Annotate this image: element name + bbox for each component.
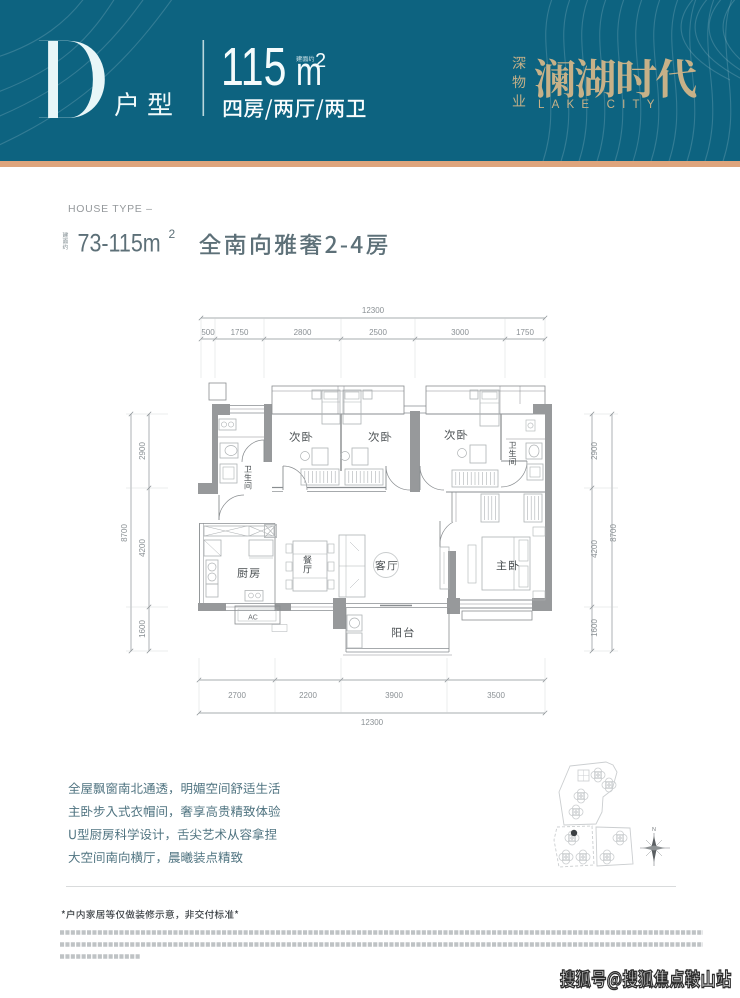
- svg-text:8700: 8700: [609, 524, 618, 542]
- svg-text:3900: 3900: [385, 691, 403, 700]
- svg-text:N: N: [652, 827, 656, 833]
- svg-text:1750: 1750: [231, 328, 249, 337]
- svg-text:AC: AC: [248, 615, 258, 622]
- svg-text:2900: 2900: [138, 442, 147, 460]
- svg-text:4200: 4200: [590, 540, 599, 558]
- svg-text:2500: 2500: [369, 328, 387, 337]
- svg-text:4200: 4200: [138, 539, 147, 557]
- svg-text:73-115m: 73-115m: [78, 229, 161, 257]
- svg-text:2800: 2800: [294, 328, 312, 337]
- svg-text:1600: 1600: [590, 619, 599, 637]
- svg-text:500: 500: [201, 328, 215, 337]
- svg-text:2: 2: [315, 50, 326, 72]
- svg-text:1750: 1750: [516, 328, 534, 337]
- svg-text:2700: 2700: [228, 691, 246, 700]
- svg-text:12300: 12300: [361, 718, 384, 727]
- svg-text:3000: 3000: [451, 328, 469, 337]
- svg-text:1600: 1600: [138, 620, 147, 638]
- svg-text:8700: 8700: [120, 524, 129, 542]
- svg-text:3500: 3500: [487, 691, 505, 700]
- svg-text:115: 115: [221, 38, 286, 98]
- svg-text:LAKE CITY: LAKE CITY: [538, 99, 662, 111]
- svg-text:2: 2: [169, 227, 176, 241]
- svg-text:12300: 12300: [362, 306, 385, 315]
- svg-text:2900: 2900: [590, 442, 599, 460]
- svg-text:HOUSE TYPE –: HOUSE TYPE –: [68, 203, 153, 215]
- svg-text:2200: 2200: [299, 691, 317, 700]
